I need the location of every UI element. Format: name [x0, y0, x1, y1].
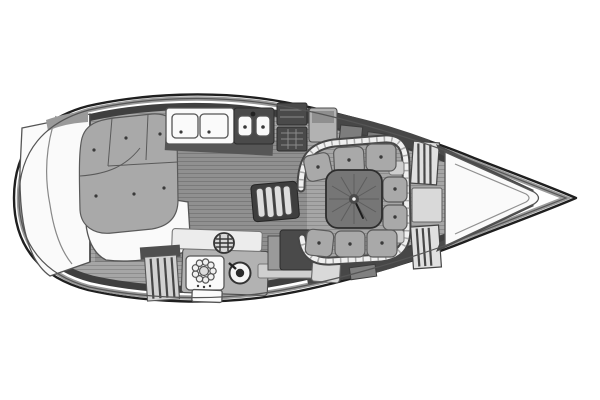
galley [172, 228, 269, 302]
head-vanity [165, 108, 274, 156]
salon-table [326, 170, 382, 228]
faucet [251, 112, 256, 117]
galley-sink [229, 263, 251, 284]
vanity-door [172, 114, 198, 138]
bow-v-section [436, 144, 539, 252]
round-vent [214, 233, 234, 253]
aft-cabin-berth [79, 114, 178, 233]
boat-layout-diagram [0, 0, 600, 400]
diagram-canvas [0, 0, 600, 400]
companionway-steps [251, 181, 300, 222]
vanity-door [200, 114, 228, 138]
